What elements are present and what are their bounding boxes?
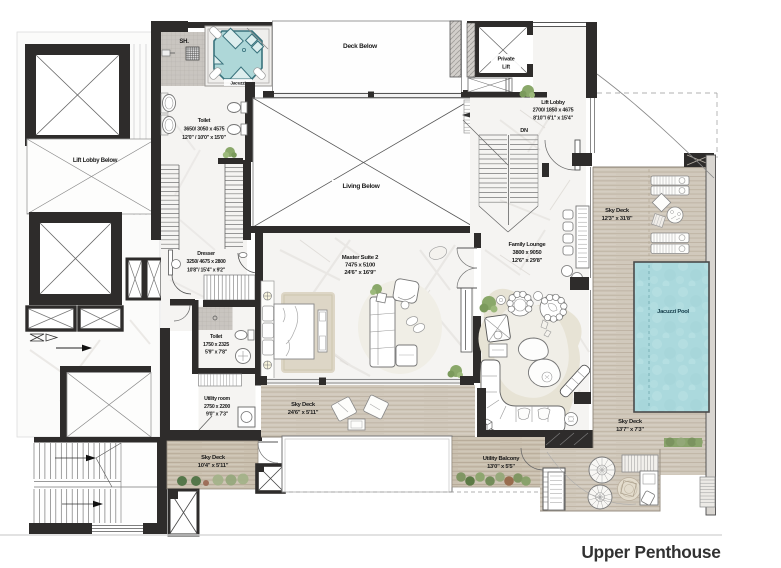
svg-text:Deck Below: Deck Below (343, 43, 378, 50)
svg-text:Upper Penthouse: Upper Penthouse (581, 542, 721, 562)
svg-text:Family Lounge3800 x 905012'6": Family Lounge3800 x 905012'6" x 29'8" (509, 242, 546, 264)
svg-text:Lift Lobby Below: Lift Lobby Below (73, 158, 118, 164)
svg-text:Master Suite 27475 x 510024'6": Master Suite 27475 x 510024'6" x 16'9" (342, 255, 379, 276)
svg-text:SH.: SH. (179, 39, 189, 45)
svg-text:Living Below: Living Below (342, 183, 380, 190)
svg-text:DN: DN (520, 128, 528, 134)
svg-text:Jacuzzi: Jacuzzi (230, 81, 245, 87)
svg-text:Utility room2750 x 22009'0" x: Utility room2750 x 22009'0" x 7'3" (204, 396, 231, 418)
svg-text:Jacuzzi Pool: Jacuzzi Pool (657, 309, 689, 315)
